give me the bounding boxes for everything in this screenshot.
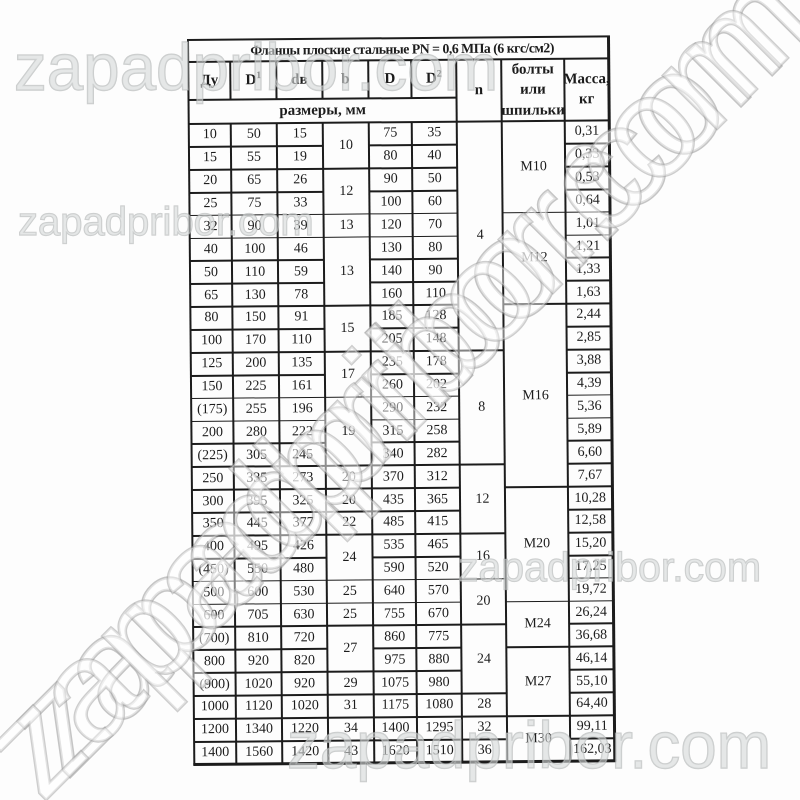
svg-text:zapadpribor.com: zapadpribor.com bbox=[14, 31, 498, 104]
svg-text:zapadpribor.com: zapadpribor.com bbox=[458, 544, 761, 590]
svg-text:zapadpribor.com: zapadpribor.com bbox=[287, 709, 771, 782]
svg-text:zapadpribor.com: zapadpribor.com bbox=[0, 0, 800, 800]
svg-text:zapadpribor.com: zapadpribor.com bbox=[18, 200, 314, 244]
